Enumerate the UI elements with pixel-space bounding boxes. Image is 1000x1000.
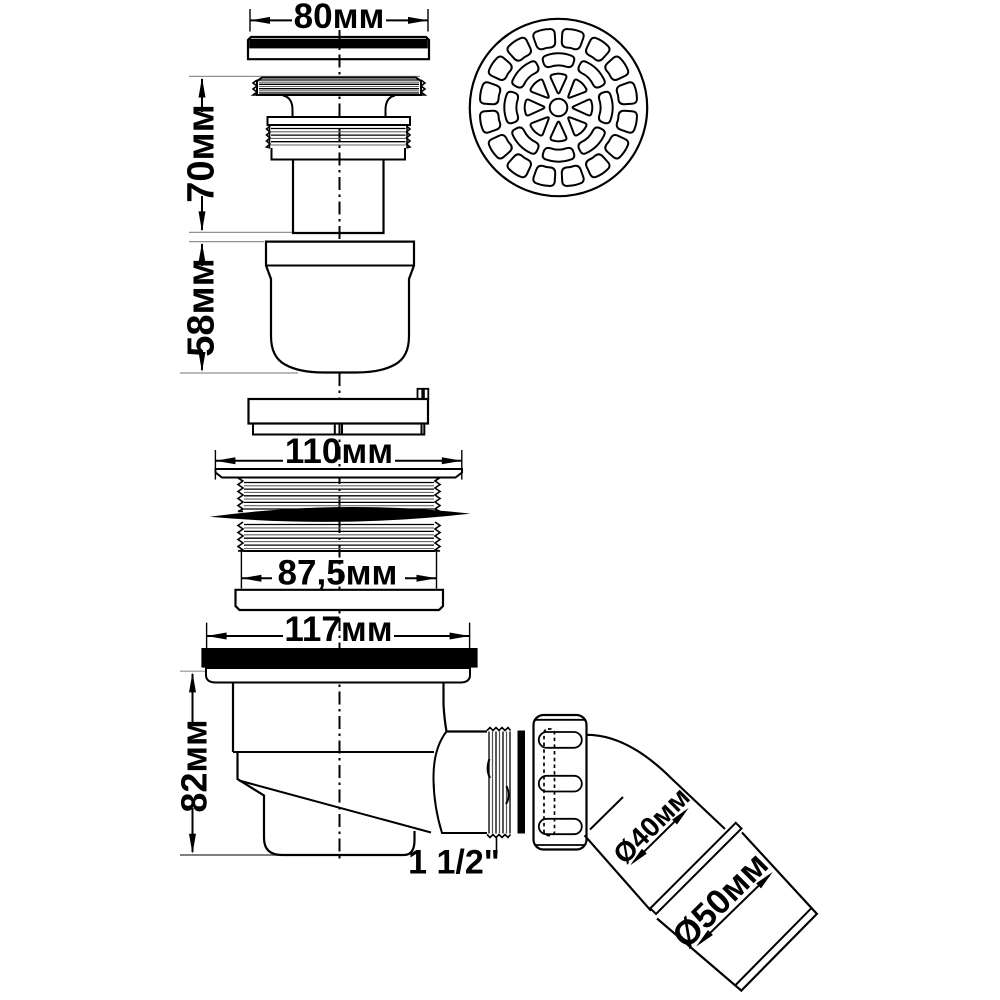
svg-text:Ø40мм: Ø40мм <box>607 781 696 870</box>
svg-text:70мм: 70мм <box>181 104 223 203</box>
svg-text:1 1/2": 1 1/2" <box>408 844 500 882</box>
svg-text:117мм: 117мм <box>284 610 392 649</box>
svg-text:58мм: 58мм <box>181 258 223 357</box>
svg-text:110мм: 110мм <box>285 432 393 471</box>
svg-text:82мм: 82мм <box>174 719 215 812</box>
svg-text:87,5мм: 87,5мм <box>278 554 398 593</box>
